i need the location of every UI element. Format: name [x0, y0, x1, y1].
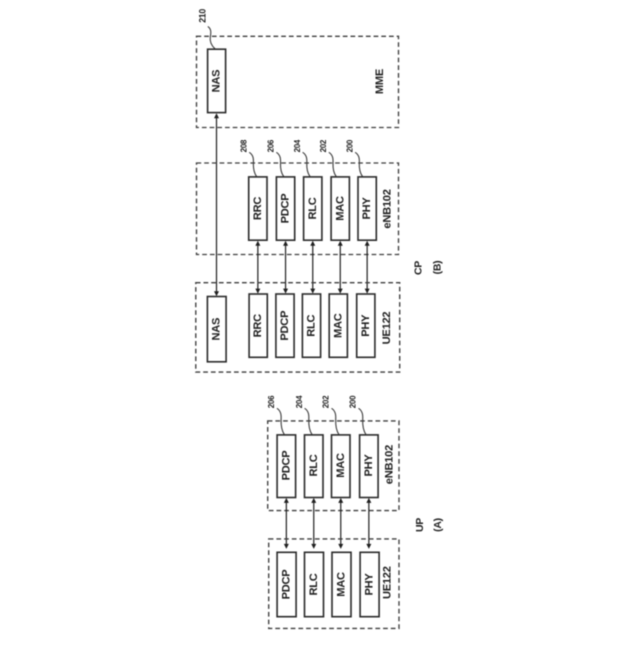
svg-text:PDCP: PDCP — [279, 310, 291, 341]
svg-text:(B): (B) — [432, 261, 444, 275]
svg-text:204: 204 — [295, 395, 304, 408]
svg-text:210: 210 — [197, 9, 207, 23]
svg-text:206: 206 — [267, 139, 276, 152]
svg-text:CP: CP — [412, 261, 424, 275]
svg-text:MAC: MAC — [336, 572, 348, 597]
svg-text:208: 208 — [239, 139, 248, 152]
svg-text:eNB102: eNB102 — [381, 189, 393, 228]
svg-text:NAS: NAS — [211, 318, 223, 341]
svg-text:(A): (A) — [432, 518, 444, 532]
svg-text:202: 202 — [319, 139, 328, 152]
svg-text:204: 204 — [293, 139, 302, 152]
svg-text:RLC: RLC — [308, 454, 320, 476]
svg-text:MAC: MAC — [334, 196, 346, 221]
svg-text:200: 200 — [345, 139, 354, 152]
svg-text:UE122: UE122 — [382, 566, 394, 599]
svg-text:206: 206 — [267, 395, 276, 408]
svg-text:MME: MME — [374, 69, 386, 94]
svg-text:RLC: RLC — [307, 197, 319, 219]
svg-text:PHY: PHY — [360, 314, 372, 337]
svg-text:PHY: PHY — [361, 197, 373, 220]
svg-text:202: 202 — [322, 395, 331, 408]
svg-text:PDCP: PDCP — [280, 450, 292, 481]
svg-text:PDCP: PDCP — [280, 193, 292, 224]
svg-text:UP: UP — [414, 518, 426, 532]
svg-text:UE122: UE122 — [381, 312, 393, 345]
svg-text:MAC: MAC — [332, 313, 344, 338]
svg-text:MAC: MAC — [335, 453, 347, 478]
svg-text:RLC: RLC — [306, 314, 318, 336]
svg-text:RRC: RRC — [252, 197, 264, 221]
svg-text:RRC: RRC — [252, 314, 264, 338]
svg-text:eNB102: eNB102 — [384, 445, 396, 484]
svg-text:PDCP: PDCP — [281, 569, 293, 600]
svg-text:NAS: NAS — [211, 70, 223, 93]
svg-text:200: 200 — [349, 395, 358, 408]
svg-text:RLC: RLC — [308, 573, 320, 595]
svg-text:PHY: PHY — [363, 454, 375, 477]
svg-text:PHY: PHY — [364, 573, 376, 596]
